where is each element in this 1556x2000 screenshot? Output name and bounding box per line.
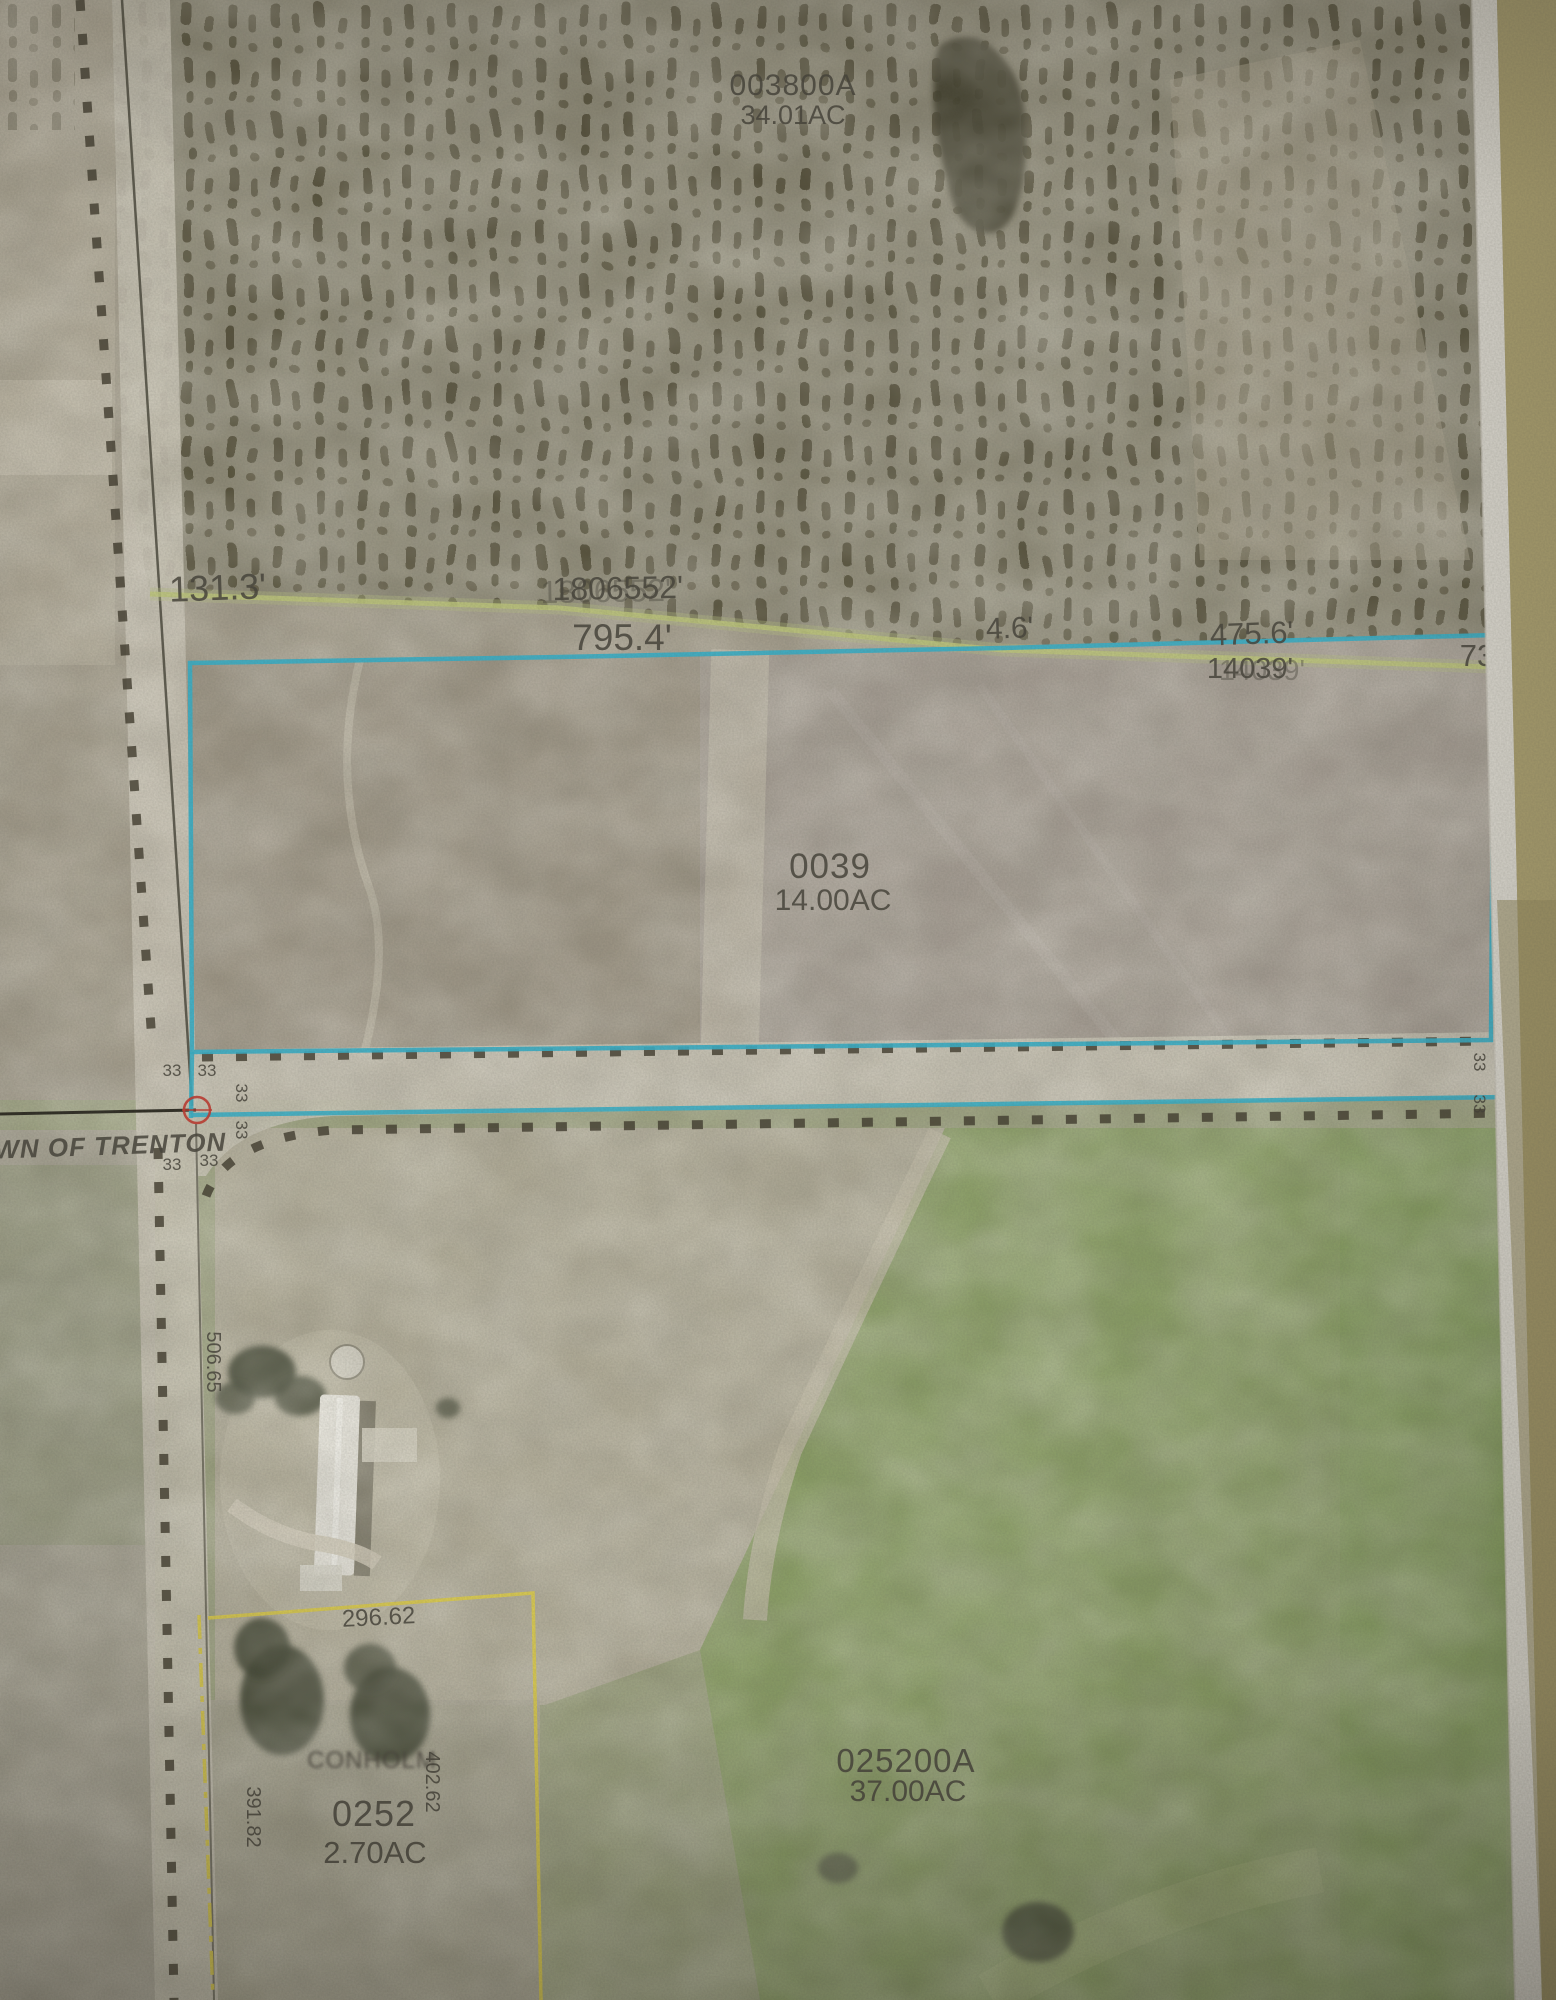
- parcel-map-svg: 003800A 34.01AC 131.3' 1806552' 1806552'…: [0, 0, 1556, 2000]
- aerial-parcel-map-photo: 003800A 34.01AC 131.3' 1806552' 1806552'…: [0, 0, 1556, 2000]
- film-grain: [0, 0, 1556, 2000]
